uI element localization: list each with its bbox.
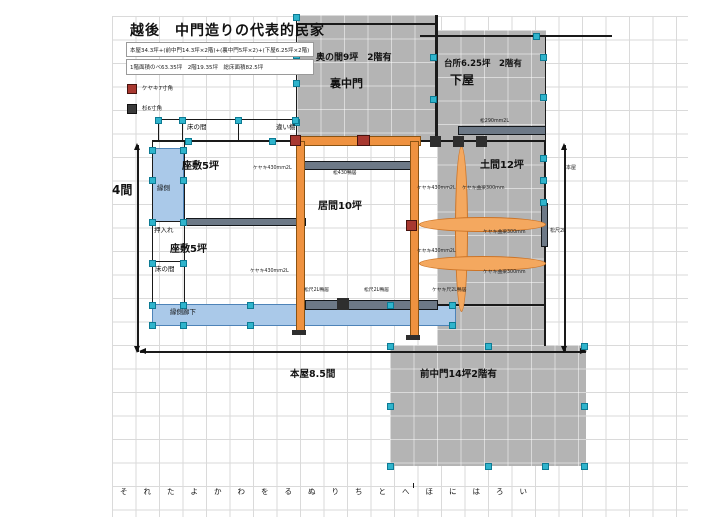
right-span-dimension-line [564, 145, 566, 352]
selection-handle[interactable] [149, 177, 156, 184]
selection-handle[interactable] [180, 219, 187, 226]
room-label-geya: 下屋 [450, 74, 474, 87]
selection-handle[interactable] [485, 343, 492, 350]
member-label-keyaki430: ケヤキ430mm2L [253, 166, 292, 171]
selection-handle[interactable] [542, 463, 549, 470]
width-dimension-line [140, 351, 586, 353]
legend-sugi-label: 杉6寸角 [142, 106, 162, 112]
selection-handle[interactable] [180, 322, 187, 329]
right-span-arrow-bottom [561, 346, 567, 353]
room-label-urachumon: 裏中門 [330, 78, 363, 90]
selection-handle[interactable] [581, 343, 588, 350]
dim-label-honya-8-5ken: 本屋8.5間 [290, 370, 335, 380]
selection-handle[interactable] [581, 463, 588, 470]
selection-handle[interactable] [430, 54, 437, 61]
selection-handle[interactable] [179, 117, 186, 124]
column-ruler-label: ち [347, 486, 371, 499]
column-ruler-label: る [277, 486, 301, 499]
selection-handle[interactable] [180, 177, 187, 184]
selection-handle[interactable] [540, 94, 547, 101]
selection-handle[interactable] [247, 322, 254, 329]
column-ruler-label: ほ [418, 486, 442, 499]
page-title: 越後 中門造りの代表的民家 [130, 24, 325, 39]
column-ruler-label: と [371, 486, 395, 499]
column-ruler-label: は [465, 486, 489, 499]
note-line-2-text: 1階面積のべ63.35坪 2階19.35坪 総床面積82.5坪 [130, 63, 263, 71]
selection-handle[interactable] [387, 343, 394, 350]
column-ruler-label: ろ [488, 486, 512, 499]
member-label-keyaki430: ケヤキ430mm2L [250, 269, 289, 274]
selection-handle[interactable] [185, 138, 192, 145]
dim-label-honya-right: 本屋 [566, 166, 576, 172]
maechumon-block [390, 345, 586, 466]
room-label-chigaidana: 違い棚 [276, 124, 296, 131]
selection-handle[interactable] [180, 147, 187, 154]
legend-keyaki-swatch [127, 84, 137, 94]
sugi-post-marker [337, 298, 349, 310]
room-label-tokonoma-upper: 床の間 [187, 124, 207, 131]
member-label-matsu-shaku-kamoi: 松尺2L鴨居 [364, 288, 389, 293]
right-span-arrow-top [561, 143, 567, 150]
geya-beam [458, 126, 546, 135]
sugi-post-marker [476, 136, 487, 147]
selection-handle[interactable] [540, 54, 547, 61]
selection-handle[interactable] [149, 302, 156, 309]
selection-handle[interactable] [485, 463, 492, 470]
legend-sugi-swatch [127, 104, 137, 114]
column-ruler-label: た [159, 486, 183, 499]
selection-handle[interactable] [293, 80, 300, 87]
column-ruler-label: へ [394, 486, 418, 499]
dim-label-matsu-shaku: 松尺2L [550, 229, 566, 235]
room-label-doma: 土間12坪 [480, 160, 524, 171]
selection-handle[interactable] [533, 33, 540, 40]
room-label-maechumon: 前中門14坪2階有 [420, 370, 497, 380]
height-dimension-line [137, 145, 139, 352]
selection-handle[interactable] [387, 403, 394, 410]
member-label-kyoryo300: ケヤキ曲梁300mm [483, 230, 526, 235]
legend-keyaki-label: ケヤキ7寸角 [142, 86, 173, 92]
sugi-post-marker [430, 136, 441, 147]
selection-handle[interactable] [387, 463, 394, 470]
selection-handle[interactable] [149, 219, 156, 226]
selection-handle[interactable] [293, 14, 300, 21]
room-label-zashiki-lower: 座敷5坪 [170, 244, 207, 255]
selection-handle[interactable] [430, 96, 437, 103]
sugi-post-marker [453, 136, 464, 147]
column-ruler-label: わ [230, 486, 254, 499]
column-ruler-label: に [441, 486, 465, 499]
selection-handle[interactable] [387, 302, 394, 309]
member-label-keyaki-shaku-kamoi: ケヤキ尺2L鴨居 [432, 288, 467, 293]
note-line-1: 本屋34.3坪+(前中門14.3坪×2階)+(裏中門5坪×2)+(下屋6.25坪… [126, 42, 314, 57]
room-label-okunoma: 奥の間9坪 2階有 [316, 54, 392, 64]
member-label-matsu290: 松290mm2L [480, 119, 509, 124]
keyaki-joint-2 [357, 135, 370, 146]
selection-handle[interactable] [449, 302, 456, 309]
member-label-matsu430-kamoi: 松430鴨居 [333, 171, 357, 176]
keyaki-post-left [296, 141, 305, 332]
keyaki-post-right [410, 141, 419, 337]
post-base-right [406, 335, 420, 340]
column-ruler-label: そ [112, 486, 136, 499]
keyaki-joint-3 [406, 220, 417, 231]
room-label-engawa-roka: 縁側廊下 [170, 309, 196, 316]
selection-handle[interactable] [155, 117, 162, 124]
column-ruler-label: を [253, 486, 277, 499]
width-dim-arrow-left [139, 348, 146, 354]
room-label-engawa: 縁側 [157, 185, 170, 192]
note-line-1-text: 本屋34.3坪+(前中門14.3坪×2階)+(裏中門5坪×2)+(下屋6.25坪… [130, 46, 309, 54]
selection-handle[interactable] [540, 177, 547, 184]
floor-plan-canvas: 越後 中門造りの代表的民家 本屋34.3坪+(前中門14.3坪×2階)+(裏中門… [0, 0, 708, 531]
member-label-kyoryo300: ケヤキ曲梁300mm [462, 186, 505, 191]
selection-handle[interactable] [581, 403, 588, 410]
curved-beam-horizontal-2 [419, 256, 546, 271]
selection-handle[interactable] [269, 138, 276, 145]
post-base-left [292, 330, 306, 335]
height-dim-arrow-top [134, 143, 140, 150]
keyaki-joint-1 [290, 135, 301, 146]
selection-handle[interactable] [247, 302, 254, 309]
room-label-zashiki-upper: 座敷5坪 [182, 161, 219, 172]
member-label-keyaki430: ケヤキ430mm2L [417, 249, 456, 254]
column-ruler-label: れ [136, 486, 160, 499]
geya-top-wall [420, 35, 612, 37]
column-ruler-label: ぬ [300, 486, 324, 499]
selection-handle[interactable] [180, 260, 187, 267]
column-ruler-label: い [512, 486, 536, 499]
zashiki-kamoi-beam [186, 218, 306, 226]
urachumon-geya-divider [435, 15, 438, 141]
room-label-oshiire: 押入れ [154, 227, 174, 234]
column-ruler-label: か [206, 486, 230, 499]
room-label-ima: 居間10坪 [318, 201, 362, 212]
note-line-2: 1階面積のべ63.35坪 2階19.35坪 総床面積82.5坪 [126, 59, 314, 75]
dim-label-4ken: 4間 [112, 184, 132, 197]
room-label-tokonoma-lower: 床の間 [155, 266, 175, 273]
selection-handle[interactable] [149, 147, 156, 154]
selection-handle[interactable] [540, 155, 547, 162]
column-ruler: そ れ た よ か わ を る ぬ り ち と へ ほ に は ろ い [112, 486, 535, 499]
member-label-kyoryo300: ケヤキ曲梁300mm [483, 270, 526, 275]
selection-handle[interactable] [149, 322, 156, 329]
selection-handle[interactable] [235, 117, 242, 124]
selection-handle[interactable] [449, 322, 456, 329]
ima-upper-kamoi-beam [302, 161, 419, 170]
selection-handle[interactable] [540, 199, 547, 206]
member-label-matsu-shaku-kamoi: 松尺2L鴨居 [304, 288, 329, 293]
room-label-daidokoro: 台所6.25坪 2階有 [444, 60, 522, 69]
column-ruler-label: よ [183, 486, 207, 499]
member-label-keyaki430: ケヤキ430mm2L [417, 186, 456, 191]
column-ruler-label: り [324, 486, 348, 499]
